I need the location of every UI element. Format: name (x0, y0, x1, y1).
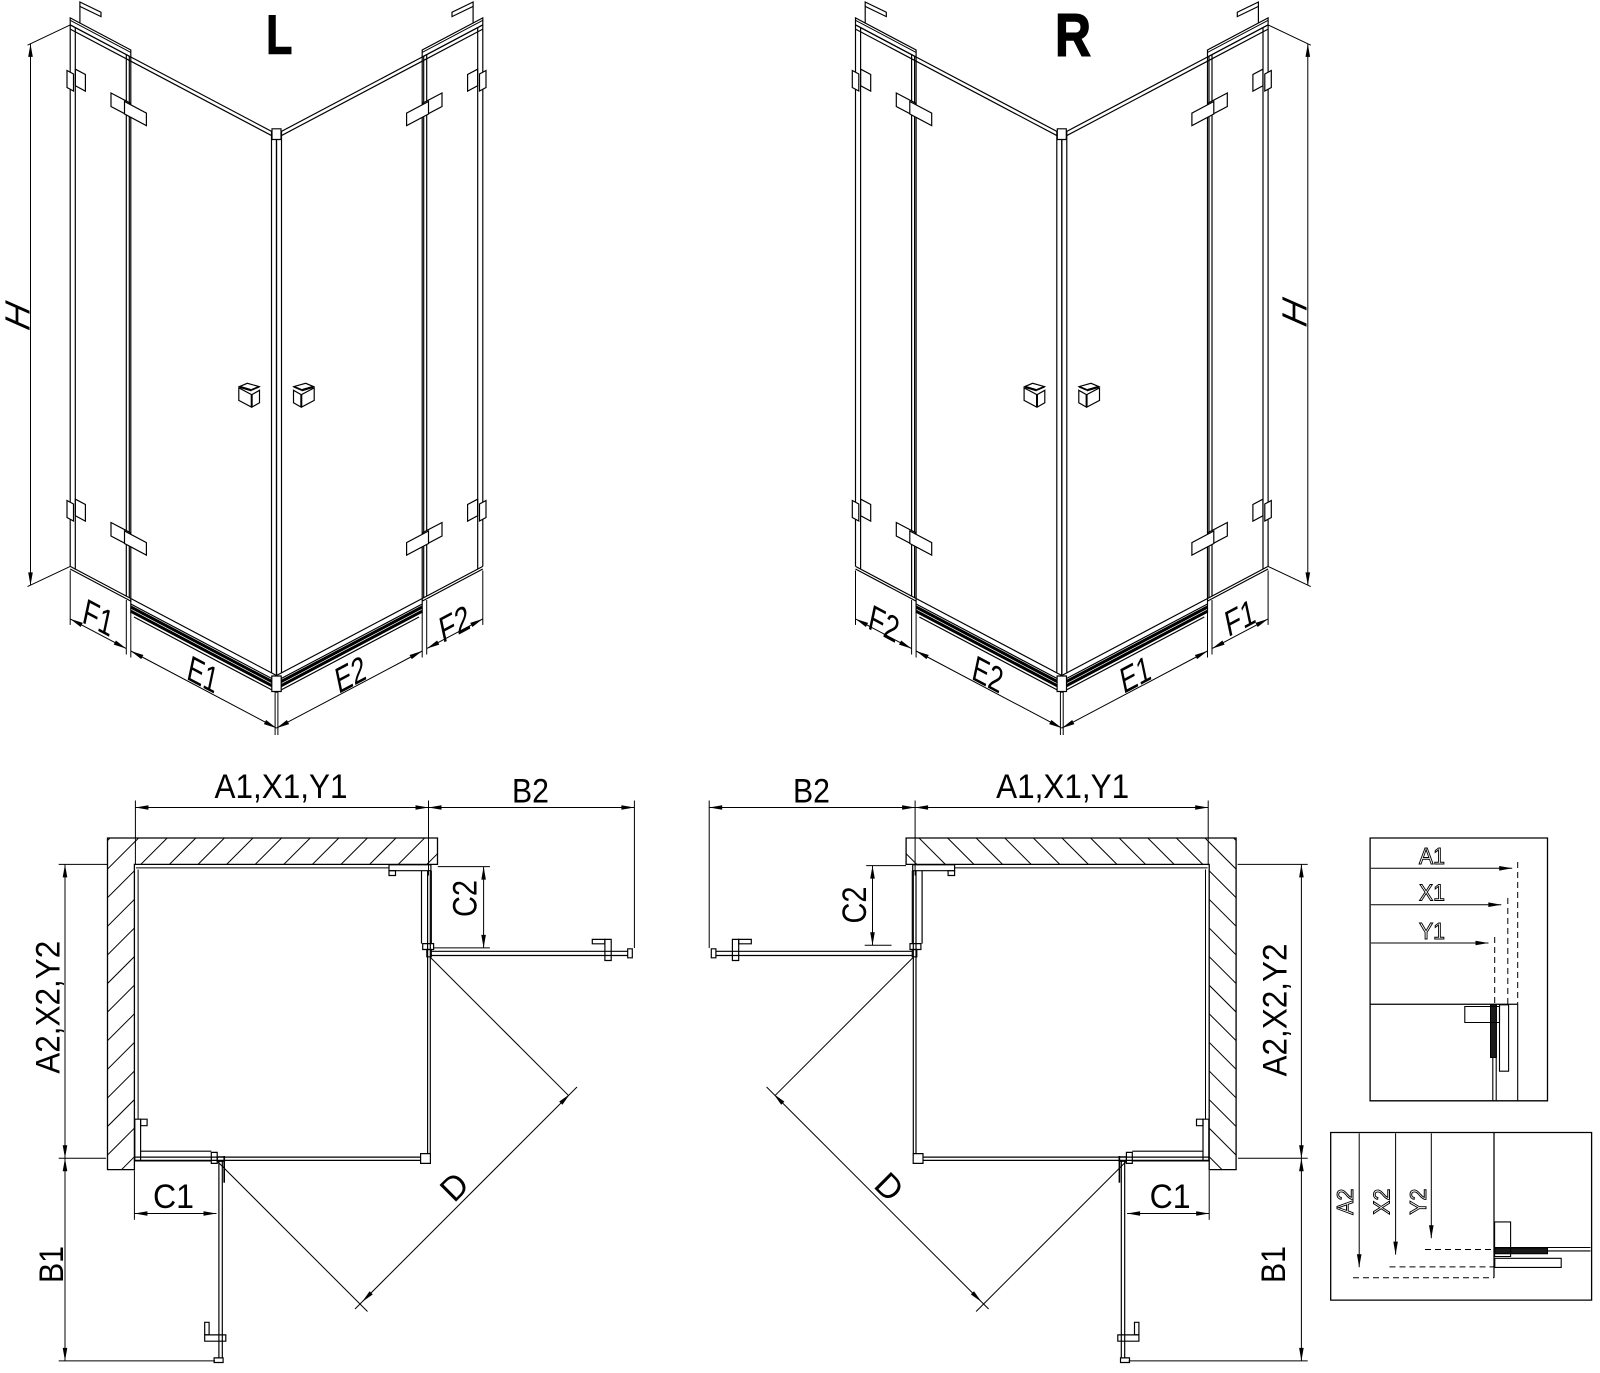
svg-text:B1: B1 (33, 1246, 71, 1283)
svg-text:C1: C1 (1150, 1178, 1191, 1216)
svg-text:B1: B1 (1255, 1246, 1293, 1283)
svg-text:A2: A2 (1332, 1189, 1358, 1215)
svg-text:A2,X2,Y2: A2,X2,Y2 (30, 941, 68, 1074)
svg-text:A1,X1,Y1: A1,X1,Y1 (996, 768, 1129, 806)
svg-text:R: R (1055, 2, 1091, 69)
svg-text:Y2: Y2 (1405, 1189, 1431, 1215)
svg-text:A1,X1,Y1: A1,X1,Y1 (215, 768, 348, 806)
svg-text:C1: C1 (153, 1178, 194, 1216)
svg-text:Y1: Y1 (1419, 918, 1445, 944)
svg-text:L: L (266, 4, 292, 66)
svg-text:A1: A1 (1419, 843, 1445, 869)
svg-text:B2: B2 (793, 772, 830, 810)
svg-text:C2: C2 (446, 880, 484, 917)
svg-text:X2: X2 (1369, 1189, 1395, 1215)
svg-text:X1: X1 (1419, 880, 1445, 906)
svg-text:C2: C2 (836, 887, 874, 924)
svg-text:B2: B2 (512, 772, 549, 810)
svg-text:A2,X2,Y2: A2,X2,Y2 (1256, 944, 1294, 1077)
